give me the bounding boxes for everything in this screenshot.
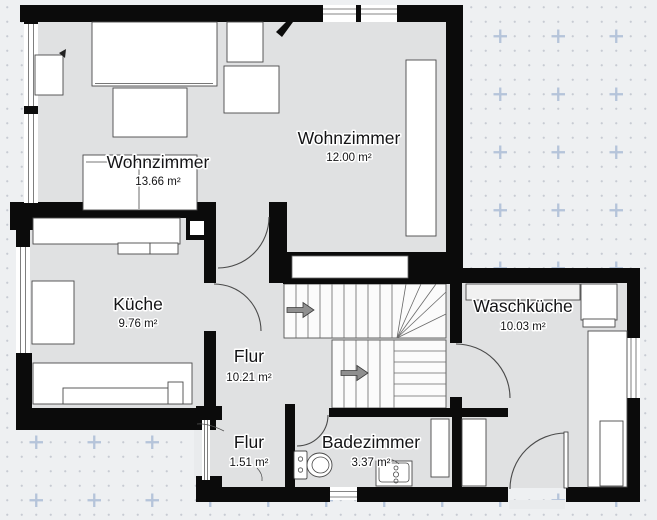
floorplan-canvas: Wohnzimmer 13.66 m² Wohnzimmer 12.00 m² …	[0, 0, 657, 520]
wall-waschkueche-top[interactable]	[463, 268, 640, 283]
bed-large[interactable]	[92, 22, 217, 86]
wall-right-lower[interactable]	[627, 398, 640, 502]
label-badezimmer-name: Badezimmer	[322, 432, 420, 452]
label-kueche-name: Küche	[113, 294, 163, 314]
doorway-floor-waschkueche	[450, 343, 462, 397]
label-waschkueche-area: 10.03 m²	[500, 321, 546, 333]
laundry-cabinet[interactable]	[462, 419, 486, 486]
toilet[interactable]	[294, 451, 332, 479]
wall-kueche-flur-upper[interactable]	[204, 218, 216, 283]
wall-right-upper[interactable]	[627, 283, 640, 338]
wall-kueche-bottom[interactable]	[16, 408, 216, 430]
wall-flur-stub[interactable]	[196, 406, 222, 420]
label-flur-klein-area: 1.51 m²	[230, 457, 269, 469]
coffee-table[interactable]	[113, 88, 187, 137]
nightstand[interactable]	[35, 55, 63, 95]
label-flur-klein-name: Flur	[234, 432, 264, 452]
label-wohnzimmer-links-area: 13.66 m²	[135, 176, 181, 188]
wall-wohnzimmer-right[interactable]	[446, 5, 463, 283]
wall-bad-top[interactable]	[329, 408, 452, 417]
wall-left-kueche-upper[interactable]	[16, 218, 30, 247]
wall-flur-klein-bad[interactable]	[285, 404, 295, 502]
side-table-top[interactable]	[227, 22, 263, 62]
fridge[interactable]	[32, 281, 74, 344]
entrance-threshold	[509, 500, 565, 509]
label-wohnzimmer-rechts-name: Wohnzimmer	[298, 128, 401, 148]
window-left-wohnzimmer[interactable]	[24, 24, 38, 203]
chimney-flue	[190, 221, 204, 235]
label-badezimmer-area: 3.37 m²	[352, 457, 391, 469]
doorway-floor-wohnzimmer	[216, 202, 269, 218]
wall-bad-bottom-left[interactable]	[295, 487, 330, 502]
label-wohnzimmer-links-name: Wohnzimmer	[107, 152, 210, 172]
window-top-wohnzimmer[interactable]	[323, 5, 397, 22]
window-left-flur-klein[interactable]	[202, 420, 210, 480]
door-entrance-leaf[interactable]	[564, 432, 568, 488]
dryer[interactable]	[600, 421, 623, 486]
label-kueche-area: 9.76 m²	[119, 318, 158, 330]
label-waschkueche-name: Waschküche	[473, 296, 573, 316]
shelf-sideboard[interactable]	[406, 60, 436, 236]
label-flur-area: 10.21 m²	[226, 372, 272, 384]
window-bottom-badezimmer[interactable]	[330, 487, 357, 500]
window-left-kueche[interactable]	[16, 247, 30, 353]
wall-waschkueche-left-upper[interactable]	[450, 268, 462, 343]
label-wohnzimmer-rechts-area: 12.00 m²	[326, 152, 372, 164]
washing-machine-top[interactable]	[581, 284, 617, 327]
stair-top-landing[interactable]	[292, 256, 408, 278]
wall-bad-waschkueche[interactable]	[452, 417, 462, 487]
wall-flur-klein-bottom[interactable]	[222, 487, 295, 502]
bath-cabinet[interactable]	[431, 419, 449, 477]
kitchen-bench[interactable]	[33, 363, 192, 404]
floorplan-drawing: Wohnzimmer 13.66 m² Wohnzimmer 12.00 m² …	[0, 0, 657, 520]
label-flur-name: Flur	[234, 346, 264, 366]
wall-waschkueche-stub[interactable]	[450, 408, 508, 417]
window-right-waschkueche[interactable]	[627, 338, 640, 398]
doorway-floor-kueche	[204, 283, 216, 331]
armchair[interactable]	[224, 66, 279, 113]
wall-bad-bottom-right[interactable]	[357, 487, 508, 502]
